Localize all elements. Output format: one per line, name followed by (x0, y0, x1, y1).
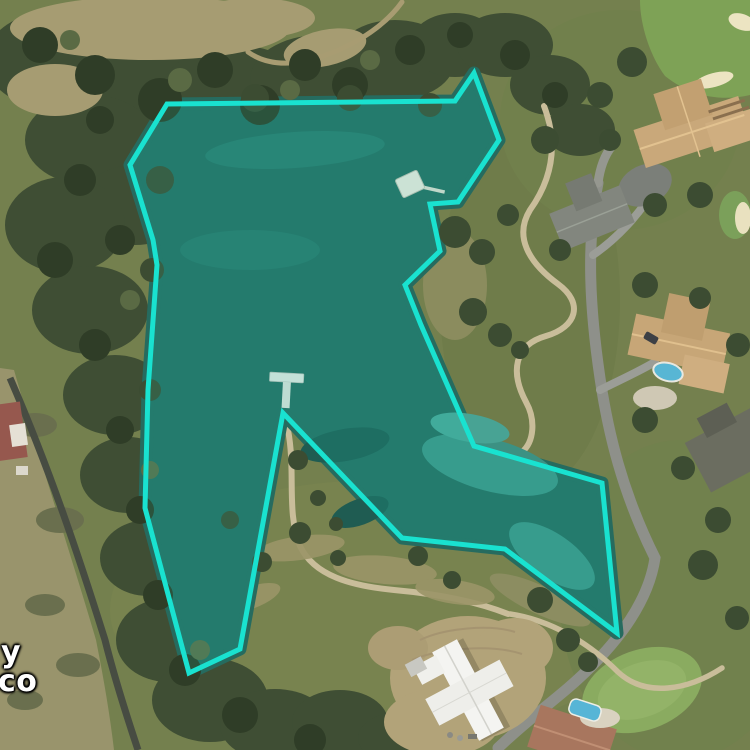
aerial-imagery (0, 0, 750, 750)
map-viewport[interactable]: y co (0, 0, 750, 750)
map-label-partial-2: co (0, 667, 37, 697)
